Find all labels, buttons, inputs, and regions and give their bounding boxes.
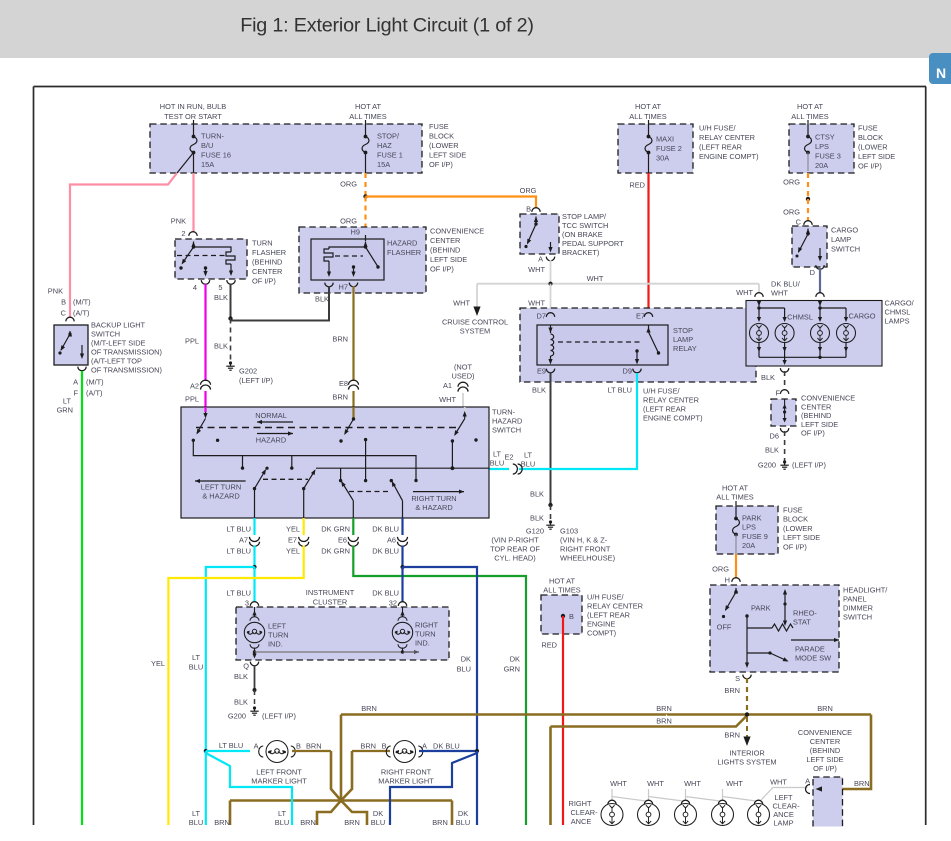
svg-text:PNK: PNK bbox=[171, 217, 186, 226]
svg-text:4: 4 bbox=[193, 283, 197, 292]
svg-text:ENGINE COMPT): ENGINE COMPT) bbox=[643, 414, 703, 423]
svg-text:HAZARD: HAZARD bbox=[492, 417, 522, 426]
svg-text:FUSE: FUSE bbox=[858, 124, 878, 133]
svg-text:BRN: BRN bbox=[656, 704, 672, 713]
svg-text:(BEHIND: (BEHIND bbox=[810, 746, 840, 755]
svg-text:TEST OR START: TEST OR START bbox=[164, 112, 222, 121]
svg-text:S: S bbox=[735, 674, 740, 683]
svg-text:(LEFT I/P): (LEFT I/P) bbox=[239, 376, 273, 385]
svg-text:E2: E2 bbox=[504, 453, 513, 462]
svg-text:BLK: BLK bbox=[530, 514, 544, 523]
svg-text:WHT: WHT bbox=[587, 274, 604, 283]
svg-text:D7: D7 bbox=[537, 312, 546, 321]
svg-text:RIGHT FRONT: RIGHT FRONT bbox=[560, 545, 611, 554]
svg-text:IND.: IND. bbox=[268, 640, 283, 649]
svg-text:(LEFT REAR: (LEFT REAR bbox=[699, 143, 742, 152]
svg-text:BLK: BLK bbox=[532, 386, 546, 395]
svg-text:ORG: ORG bbox=[783, 178, 800, 187]
svg-text:(BEHIND: (BEHIND bbox=[252, 258, 282, 267]
svg-text:BLU: BLU bbox=[371, 818, 385, 827]
svg-text:BRN: BRN bbox=[332, 393, 348, 402]
svg-text:(VIN H, K & Z-: (VIN H, K & Z- bbox=[560, 536, 608, 545]
svg-text:U/H FUSE/: U/H FUSE/ bbox=[587, 593, 624, 602]
svg-text:ORG: ORG bbox=[340, 180, 357, 189]
svg-text:BRN: BRN bbox=[214, 818, 230, 827]
svg-text:LT: LT bbox=[278, 809, 287, 818]
svg-text:PARK: PARK bbox=[742, 514, 762, 523]
svg-text:RED: RED bbox=[629, 181, 645, 190]
svg-text:LIGHTS SYSTEM: LIGHTS SYSTEM bbox=[717, 758, 776, 767]
svg-text:E9: E9 bbox=[537, 367, 546, 376]
svg-text:USED): USED) bbox=[452, 372, 475, 381]
svg-text:BLK: BLK bbox=[530, 490, 544, 499]
svg-text:BLK: BLK bbox=[315, 295, 329, 304]
svg-text:5: 5 bbox=[218, 283, 222, 292]
svg-text:WHT: WHT bbox=[528, 299, 545, 308]
svg-text:BRN: BRN bbox=[360, 742, 376, 751]
svg-text:DIMMER: DIMMER bbox=[843, 604, 873, 613]
svg-text:RIGHT: RIGHT bbox=[415, 621, 438, 630]
svg-text:WHT: WHT bbox=[770, 778, 787, 787]
svg-text:OF I/P): OF I/P) bbox=[252, 277, 276, 286]
svg-text:BRN: BRN bbox=[332, 335, 348, 344]
svg-text:RED: RED bbox=[541, 641, 557, 650]
svg-text:G103: G103 bbox=[560, 527, 578, 536]
svg-text:FUSE: FUSE bbox=[429, 122, 449, 131]
svg-text:LPS: LPS bbox=[815, 142, 829, 151]
svg-text:A2: A2 bbox=[190, 382, 199, 391]
svg-text:LEFT SIDE: LEFT SIDE bbox=[430, 255, 467, 264]
svg-text:LEFT: LEFT bbox=[268, 622, 287, 631]
svg-text:A: A bbox=[538, 255, 543, 264]
svg-text:BLK: BLK bbox=[761, 373, 775, 382]
svg-text:3: 3 bbox=[245, 599, 249, 608]
svg-text:A: A bbox=[73, 378, 78, 387]
svg-text:WHT: WHT bbox=[453, 299, 470, 308]
svg-text:BRN: BRN bbox=[306, 742, 322, 751]
svg-text:STOP/: STOP/ bbox=[377, 132, 400, 141]
svg-text:LAMPS: LAMPS bbox=[885, 317, 910, 326]
svg-text:CARGO/: CARGO/ bbox=[885, 299, 915, 308]
svg-text:H: H bbox=[725, 576, 730, 585]
svg-text:LAMP: LAMP bbox=[773, 819, 793, 828]
svg-text:HAZARD: HAZARD bbox=[387, 239, 417, 248]
svg-text:(A/T-LEFT TOP: (A/T-LEFT TOP bbox=[91, 357, 142, 366]
svg-text:(A/T): (A/T) bbox=[86, 389, 102, 398]
svg-text:BLOCK: BLOCK bbox=[783, 515, 808, 524]
svg-text:TURN: TURN bbox=[415, 630, 436, 639]
svg-text:ALL TIMES: ALL TIMES bbox=[543, 586, 580, 595]
svg-text:RIGHT TURN: RIGHT TURN bbox=[411, 494, 456, 503]
svg-text:DK: DK bbox=[373, 809, 383, 818]
svg-text:HAZARD: HAZARD bbox=[256, 436, 286, 445]
svg-text:FLASHER: FLASHER bbox=[252, 248, 286, 257]
svg-text:BLU: BLU bbox=[189, 663, 203, 672]
svg-text:STOP LAMP/: STOP LAMP/ bbox=[562, 212, 607, 221]
svg-text:RIGHT FRONT: RIGHT FRONT bbox=[381, 768, 432, 777]
svg-text:G200: G200 bbox=[228, 712, 246, 721]
svg-text:2: 2 bbox=[181, 229, 185, 238]
svg-text:LT BLU: LT BLU bbox=[608, 386, 632, 395]
svg-text:ALL TIMES: ALL TIMES bbox=[629, 112, 666, 121]
svg-text:DK BLU: DK BLU bbox=[372, 525, 399, 534]
svg-text:DK: DK bbox=[458, 809, 468, 818]
svg-text:RIGHT: RIGHT bbox=[569, 799, 592, 808]
svg-text:A: A bbox=[422, 742, 427, 751]
svg-text:TOP REAR OF: TOP REAR OF bbox=[490, 545, 540, 554]
svg-text:HOT AT: HOT AT bbox=[722, 484, 748, 493]
svg-text:BLK: BLK bbox=[214, 342, 228, 351]
svg-text:DK BLU: DK BLU bbox=[372, 547, 399, 556]
svg-text:(LEFT REAR: (LEFT REAR bbox=[643, 405, 686, 414]
svg-text:(BEHIND: (BEHIND bbox=[430, 246, 460, 255]
svg-text:LPS: LPS bbox=[742, 523, 756, 532]
svg-text:A7: A7 bbox=[239, 536, 248, 545]
svg-text:B: B bbox=[296, 742, 301, 751]
svg-text:WHEELHOUSE): WHEELHOUSE) bbox=[560, 554, 615, 563]
svg-text:HAZ: HAZ bbox=[377, 141, 392, 150]
svg-text:CRUISE CONTROL: CRUISE CONTROL bbox=[442, 318, 508, 327]
svg-text:G202: G202 bbox=[239, 367, 257, 376]
svg-text:SYSTEM: SYSTEM bbox=[460, 327, 490, 336]
svg-text:DK BLU: DK BLU bbox=[372, 589, 399, 598]
svg-text:YEL: YEL bbox=[286, 547, 300, 556]
svg-text:A: A bbox=[254, 742, 259, 751]
svg-text:RELAY: RELAY bbox=[673, 344, 697, 353]
svg-text:WHT: WHT bbox=[771, 289, 788, 298]
svg-text:WHT: WHT bbox=[439, 395, 456, 404]
svg-text:WHT: WHT bbox=[736, 288, 753, 297]
svg-text:BRN: BRN bbox=[724, 686, 740, 695]
svg-text:GRN: GRN bbox=[57, 406, 73, 415]
svg-text:CLEAR-: CLEAR- bbox=[570, 808, 598, 817]
svg-text:WHT: WHT bbox=[528, 265, 545, 274]
svg-text:TURN: TURN bbox=[268, 631, 289, 640]
svg-text:LEFT SIDE: LEFT SIDE bbox=[806, 755, 843, 764]
svg-text:RELAY CENTER: RELAY CENTER bbox=[699, 133, 755, 142]
svg-text:TURN-: TURN- bbox=[201, 132, 225, 141]
svg-text:PPL: PPL bbox=[185, 395, 199, 404]
svg-text:CENTER: CENTER bbox=[810, 737, 840, 746]
svg-text:HOT AT: HOT AT bbox=[355, 102, 381, 111]
svg-text:YEL: YEL bbox=[151, 659, 165, 668]
svg-text:IND.: IND. bbox=[415, 639, 430, 648]
svg-text:STAT: STAT bbox=[793, 618, 811, 627]
svg-text:OF I/P): OF I/P) bbox=[813, 764, 837, 773]
svg-text:PNK: PNK bbox=[48, 287, 63, 296]
svg-text:DK: DK bbox=[461, 655, 471, 664]
svg-text:D6: D6 bbox=[770, 432, 779, 441]
svg-text:YEL: YEL bbox=[286, 525, 300, 534]
svg-text:TURN-: TURN- bbox=[492, 408, 516, 417]
svg-text:CONVENIENCE: CONVENIENCE bbox=[801, 394, 855, 403]
svg-text:BRN: BRN bbox=[361, 704, 377, 713]
svg-text:LEFT SIDE: LEFT SIDE bbox=[783, 533, 820, 542]
svg-text:ALL TIMES: ALL TIMES bbox=[791, 112, 828, 121]
svg-text:INTERIOR: INTERIOR bbox=[729, 749, 764, 758]
svg-text:SWITCH: SWITCH bbox=[831, 245, 860, 254]
svg-text:B: B bbox=[61, 298, 66, 307]
svg-text:RELAY CENTER: RELAY CENTER bbox=[643, 396, 699, 405]
svg-text:BRN: BRN bbox=[344, 818, 360, 827]
svg-text:LAMP: LAMP bbox=[673, 335, 693, 344]
svg-text:H7: H7 bbox=[339, 283, 348, 292]
svg-text:CYL. HEAD): CYL. HEAD) bbox=[494, 554, 535, 563]
svg-text:PARADE: PARADE bbox=[795, 645, 825, 654]
svg-text:MAXI: MAXI bbox=[656, 135, 674, 144]
svg-text:TCC SWITCH: TCC SWITCH bbox=[562, 221, 608, 230]
svg-text:ENGINE: ENGINE bbox=[587, 620, 615, 629]
svg-text:CLUSTER: CLUSTER bbox=[313, 598, 348, 607]
svg-text:Fig 1: Exterior Light Circuit: Fig 1: Exterior Light Circuit (1 of 2) bbox=[240, 15, 534, 37]
svg-text:ENGINE COMPT): ENGINE COMPT) bbox=[699, 152, 759, 161]
svg-text:15A: 15A bbox=[377, 160, 390, 169]
svg-text:WHT: WHT bbox=[726, 779, 743, 788]
svg-text:BLK: BLK bbox=[765, 446, 779, 455]
svg-text:HOT AT: HOT AT bbox=[635, 102, 661, 111]
svg-text:A1: A1 bbox=[443, 381, 452, 390]
svg-text:LT: LT bbox=[192, 653, 201, 662]
svg-text:HOT AT: HOT AT bbox=[549, 577, 575, 586]
svg-text:B: B bbox=[526, 205, 531, 214]
svg-text:ALL TIMES: ALL TIMES bbox=[716, 493, 753, 502]
svg-text:C: C bbox=[61, 309, 67, 318]
svg-text:(M/T): (M/T) bbox=[86, 378, 104, 387]
svg-text:LEFT SIDE: LEFT SIDE bbox=[801, 420, 838, 429]
svg-text:BLOCK: BLOCK bbox=[858, 133, 883, 142]
svg-text:MARKER LIGHT: MARKER LIGHT bbox=[378, 777, 434, 786]
svg-text:LT: LT bbox=[192, 809, 201, 818]
svg-text:E7: E7 bbox=[288, 536, 297, 545]
svg-text:BRN: BRN bbox=[854, 779, 870, 788]
svg-text:32: 32 bbox=[389, 599, 397, 608]
svg-text:G120: G120 bbox=[526, 527, 544, 536]
svg-text:ORG: ORG bbox=[520, 186, 537, 195]
svg-text:30A: 30A bbox=[656, 154, 669, 163]
svg-text:OF I/P): OF I/P) bbox=[783, 542, 807, 551]
svg-text:(LEFT I/P): (LEFT I/P) bbox=[262, 712, 296, 721]
svg-text:LT BLU: LT BLU bbox=[219, 741, 243, 750]
svg-text:PARK: PARK bbox=[751, 604, 771, 613]
svg-text:(VIN P-RIGHT: (VIN P-RIGHT bbox=[491, 536, 539, 545]
svg-text:LAMP: LAMP bbox=[831, 235, 851, 244]
svg-text:CENTER: CENTER bbox=[252, 267, 282, 276]
svg-text:DK GRN: DK GRN bbox=[321, 547, 350, 556]
svg-text:FUSE 2: FUSE 2 bbox=[656, 144, 682, 153]
svg-text:DK: DK bbox=[510, 655, 520, 664]
svg-text:D: D bbox=[810, 268, 815, 277]
svg-text:BLK: BLK bbox=[214, 293, 228, 302]
svg-text:CONVENIENCE: CONVENIENCE bbox=[430, 227, 484, 236]
svg-text:E7: E7 bbox=[636, 312, 645, 321]
svg-text:DK BLU/: DK BLU/ bbox=[771, 280, 801, 289]
svg-text:FUSE 16: FUSE 16 bbox=[201, 151, 231, 160]
svg-text:(LOWER: (LOWER bbox=[429, 141, 459, 150]
svg-text:H9: H9 bbox=[351, 228, 360, 237]
svg-text:LT: LT bbox=[63, 397, 72, 406]
svg-text:BLU: BLU bbox=[456, 818, 470, 827]
svg-text:RHEO-: RHEO- bbox=[793, 609, 817, 618]
svg-text:(NOT: (NOT bbox=[454, 363, 473, 372]
svg-text:(ON BRAKE: (ON BRAKE bbox=[562, 230, 603, 239]
svg-text:CHMSL: CHMSL bbox=[885, 308, 911, 317]
svg-text:BLK: BLK bbox=[234, 672, 248, 681]
svg-text:BRN: BRN bbox=[817, 704, 833, 713]
svg-text:BLU: BLU bbox=[457, 665, 471, 674]
svg-text:F: F bbox=[73, 389, 78, 398]
svg-text:ALL TIMES: ALL TIMES bbox=[349, 112, 386, 121]
svg-text:MARKER LIGHT: MARKER LIGHT bbox=[251, 777, 307, 786]
svg-text:CTSY: CTSY bbox=[815, 133, 835, 142]
svg-text:D9: D9 bbox=[623, 367, 632, 376]
svg-text:ORG: ORG bbox=[712, 565, 729, 574]
svg-text:LT BLU: LT BLU bbox=[227, 547, 251, 556]
svg-text:DK GRN: DK GRN bbox=[321, 525, 350, 534]
svg-text:LEFT TURN: LEFT TURN bbox=[201, 483, 241, 492]
svg-text:SWITCH: SWITCH bbox=[492, 426, 521, 435]
svg-text:CARGO: CARGO bbox=[831, 226, 858, 235]
svg-text:OFF: OFF bbox=[717, 623, 732, 632]
svg-text:NORMAL: NORMAL bbox=[255, 411, 287, 420]
svg-text:RELAY CENTER: RELAY CENTER bbox=[587, 602, 643, 611]
svg-text:(A/T): (A/T) bbox=[73, 309, 89, 318]
svg-text:(M/T): (M/T) bbox=[73, 298, 91, 307]
svg-text:BRN: BRN bbox=[300, 818, 316, 827]
svg-text:F: F bbox=[775, 389, 780, 398]
svg-text:(M/T-LEFT SIDE: (M/T-LEFT SIDE bbox=[91, 339, 146, 348]
svg-text:HOT AT: HOT AT bbox=[797, 102, 823, 111]
svg-text:BLU: BLU bbox=[521, 460, 535, 469]
svg-text:HEADLIGHT/: HEADLIGHT/ bbox=[843, 586, 888, 595]
svg-text:E6: E6 bbox=[338, 536, 347, 545]
svg-text:COMPT): COMPT) bbox=[587, 629, 616, 638]
svg-text:FLASHER: FLASHER bbox=[387, 248, 421, 257]
svg-text:LT: LT bbox=[524, 451, 533, 460]
svg-text:TURN: TURN bbox=[252, 239, 273, 248]
svg-text:LT: LT bbox=[493, 450, 502, 459]
svg-text:A6: A6 bbox=[387, 536, 396, 545]
svg-text:BRACKET): BRACKET) bbox=[562, 248, 599, 257]
svg-text:OF TRANSMISSION): OF TRANSMISSION) bbox=[91, 366, 162, 375]
svg-text:LEFT SIDE: LEFT SIDE bbox=[858, 152, 895, 161]
svg-text:FUSE 9: FUSE 9 bbox=[742, 532, 768, 541]
svg-text:U/H FUSE/: U/H FUSE/ bbox=[643, 387, 680, 396]
svg-text:(LEFT I/P): (LEFT I/P) bbox=[792, 461, 826, 470]
svg-text:B: B bbox=[382, 742, 387, 751]
svg-text:OF I/P): OF I/P) bbox=[430, 265, 454, 274]
svg-text:HOT IN RUN, BULB: HOT IN RUN, BULB bbox=[160, 102, 226, 111]
svg-text:WHT: WHT bbox=[610, 779, 627, 788]
svg-text:(BEHIND: (BEHIND bbox=[801, 411, 831, 420]
svg-text:BLK: BLK bbox=[234, 698, 248, 707]
svg-text:BACKUP LIGHT: BACKUP LIGHT bbox=[91, 321, 146, 330]
svg-text:(LEFT REAR: (LEFT REAR bbox=[587, 611, 630, 620]
svg-text:BLOCK: BLOCK bbox=[429, 132, 454, 141]
svg-text:BLU: BLU bbox=[189, 818, 203, 827]
svg-text:LT BLU: LT BLU bbox=[227, 589, 251, 598]
svg-text:Q: Q bbox=[243, 662, 249, 671]
svg-text:PEDAL SUPPORT: PEDAL SUPPORT bbox=[562, 239, 624, 248]
svg-text:WHT: WHT bbox=[684, 779, 701, 788]
svg-text:BLU: BLU bbox=[275, 818, 289, 827]
svg-text:PANEL: PANEL bbox=[843, 595, 867, 604]
svg-text:BRN: BRN bbox=[432, 818, 448, 827]
svg-text:BRN: BRN bbox=[724, 731, 740, 740]
svg-text:B/U: B/U bbox=[201, 141, 213, 150]
svg-text:B: B bbox=[569, 612, 574, 621]
svg-text:CONVENIENCE: CONVENIENCE bbox=[798, 728, 852, 737]
svg-text:CHMSL: CHMSL bbox=[787, 313, 813, 322]
svg-text:(LOWER: (LOWER bbox=[858, 143, 888, 152]
svg-text:LEFT FRONT: LEFT FRONT bbox=[256, 768, 302, 777]
svg-text:GRN: GRN bbox=[504, 665, 520, 674]
svg-text:& HAZARD: & HAZARD bbox=[415, 503, 452, 512]
svg-text:(LOWER: (LOWER bbox=[783, 524, 813, 533]
svg-text:FUSE 1: FUSE 1 bbox=[377, 151, 403, 160]
svg-text:FUSE 3: FUSE 3 bbox=[815, 152, 841, 161]
svg-text:& HAZARD: & HAZARD bbox=[202, 492, 239, 501]
svg-text:INSTRUMENT: INSTRUMENT bbox=[306, 588, 355, 597]
svg-text:SWITCH: SWITCH bbox=[91, 330, 120, 339]
svg-text:OF I/P): OF I/P) bbox=[858, 162, 882, 171]
svg-text:U/H FUSE/: U/H FUSE/ bbox=[699, 124, 736, 133]
svg-text:OF TRANSMISSION): OF TRANSMISSION) bbox=[91, 348, 162, 357]
svg-text:20A: 20A bbox=[815, 161, 828, 170]
svg-text:STOP: STOP bbox=[673, 326, 693, 335]
svg-text:C: C bbox=[796, 218, 802, 227]
svg-text:SWITCH: SWITCH bbox=[843, 613, 872, 622]
svg-text:15A: 15A bbox=[201, 160, 214, 169]
svg-text:PPL: PPL bbox=[185, 337, 199, 346]
svg-text:LT BLU: LT BLU bbox=[227, 525, 251, 534]
svg-text:ORG: ORG bbox=[340, 217, 357, 226]
svg-text:FUSE: FUSE bbox=[783, 506, 803, 515]
svg-text:OF I/P): OF I/P) bbox=[429, 160, 453, 169]
svg-text:WHT: WHT bbox=[647, 779, 664, 788]
svg-text:ANCE: ANCE bbox=[571, 817, 592, 826]
svg-text:E8: E8 bbox=[339, 379, 348, 388]
svg-text:BRN: BRN bbox=[656, 717, 672, 726]
svg-text:CENTER: CENTER bbox=[430, 236, 460, 245]
svg-text:OF I/P): OF I/P) bbox=[801, 429, 825, 438]
svg-text:LEFT SIDE: LEFT SIDE bbox=[429, 151, 466, 160]
svg-text:CENTER: CENTER bbox=[801, 402, 831, 411]
svg-text:20A: 20A bbox=[742, 541, 755, 550]
svg-text:G200: G200 bbox=[758, 461, 776, 470]
svg-text:N: N bbox=[936, 65, 946, 81]
svg-text:MODE SW: MODE SW bbox=[795, 654, 831, 663]
svg-text:DK BLU: DK BLU bbox=[433, 742, 460, 751]
svg-text:ORG: ORG bbox=[783, 208, 800, 217]
svg-text:CARGO: CARGO bbox=[848, 312, 875, 321]
svg-text:BLU: BLU bbox=[490, 459, 504, 468]
